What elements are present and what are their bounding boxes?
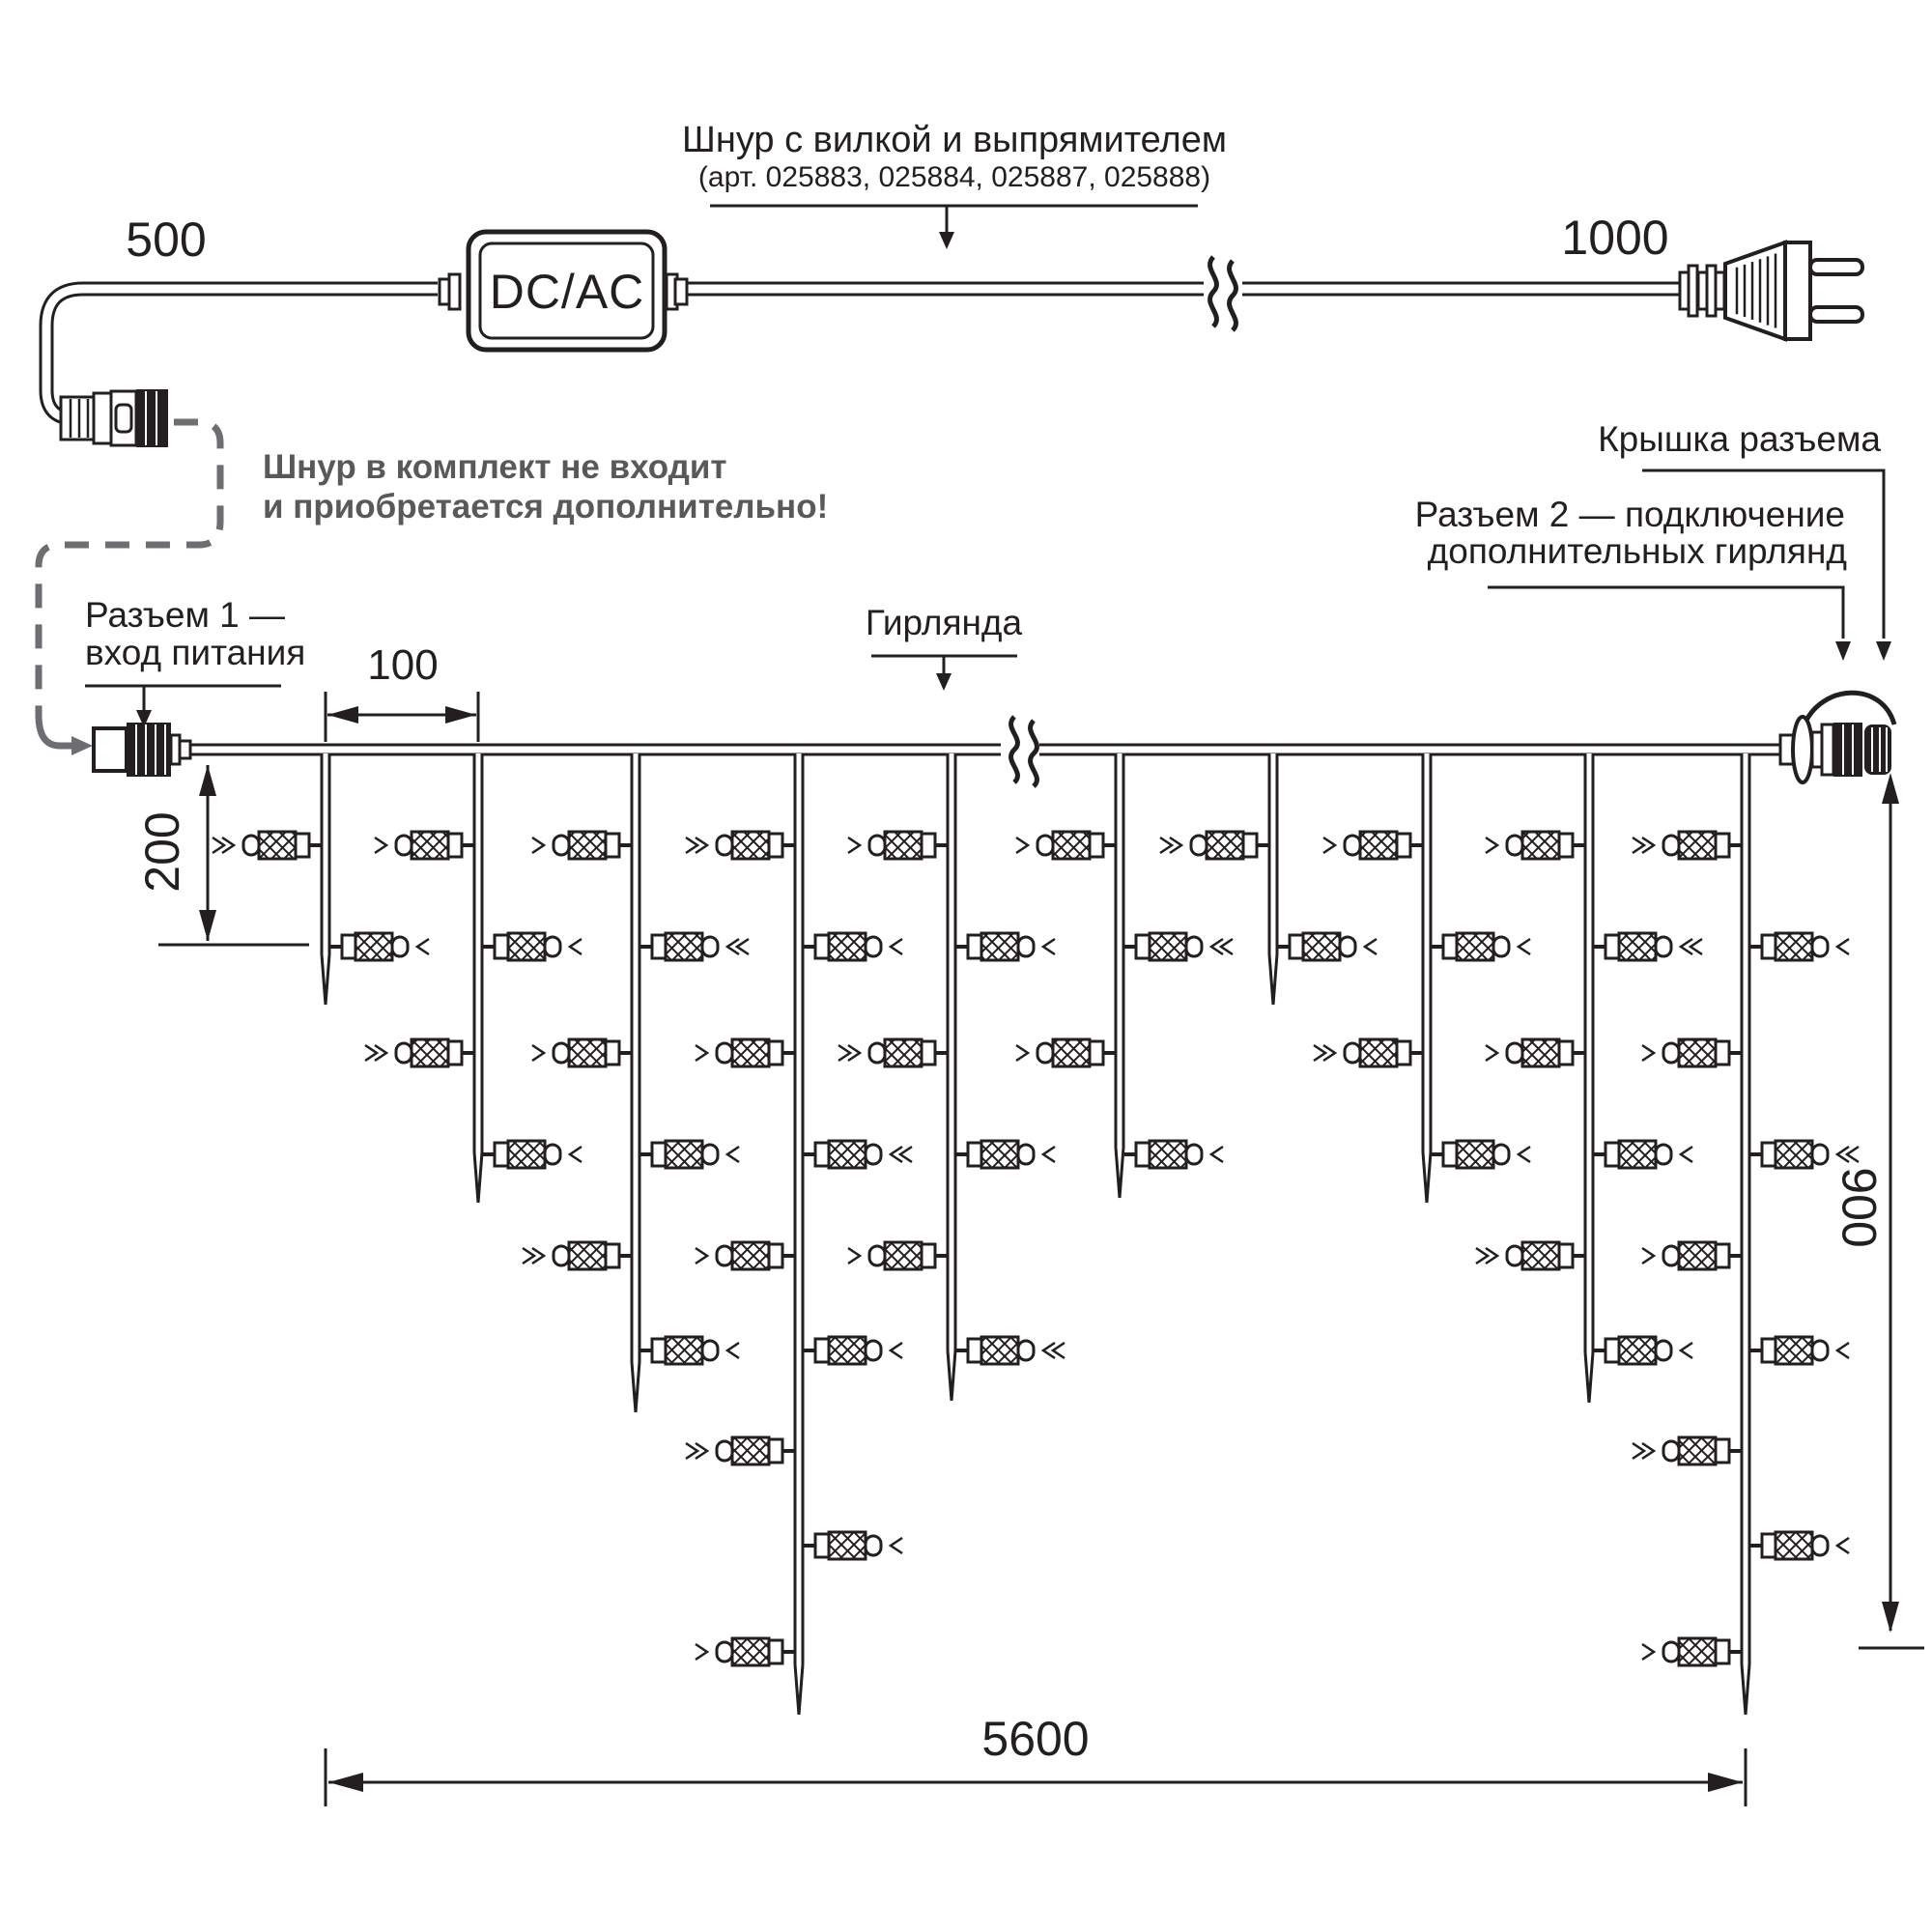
cord-connector bbox=[61, 389, 168, 447]
garland-wire bbox=[184, 717, 1780, 786]
note-line1: Шнур в комплект не входит bbox=[263, 450, 727, 486]
title: Шнур с вилкой и выпрямителем bbox=[682, 122, 1227, 160]
power-cord bbox=[46, 257, 1686, 418]
dim-drop-spacing: 100 bbox=[367, 643, 438, 688]
dim-cord-right: 1000 bbox=[1561, 213, 1668, 264]
label-connector1-1: Разъем 1 — bbox=[85, 597, 285, 635]
dim-height: 900 bbox=[1833, 1167, 1885, 1247]
label-cap: Крышка разъема bbox=[1598, 421, 1881, 459]
dim-first-bulb: 200 bbox=[137, 811, 188, 892]
label-garland: Гирлянда bbox=[866, 605, 1022, 642]
label-connector2-2: дополнительных гирлянд bbox=[1428, 533, 1847, 571]
diagram-canvas: Шнур с вилкой и выпрямителем (арт. 02588… bbox=[0, 0, 1932, 1932]
not-included-dashed-path bbox=[39, 422, 220, 755]
garland-line-art bbox=[0, 0, 1932, 1932]
dim-cord-left: 500 bbox=[126, 214, 206, 266]
adapter-label: DC/AC bbox=[490, 267, 645, 318]
garland-connector-left bbox=[94, 723, 190, 777]
garland-drops bbox=[213, 753, 1859, 1715]
label-connector2-1: Разъем 2 — подключение bbox=[1415, 497, 1845, 534]
mains-plug bbox=[1680, 242, 1862, 339]
garland-connector-right bbox=[1780, 693, 1894, 782]
subtitle: (арт. 025883, 025884, 025887, 025888) bbox=[698, 162, 1210, 193]
note-line2: и приобретается дополнительно! bbox=[263, 490, 828, 526]
dim-width: 5600 bbox=[981, 1714, 1089, 1765]
label-connector1-2: вход питания bbox=[85, 635, 305, 672]
